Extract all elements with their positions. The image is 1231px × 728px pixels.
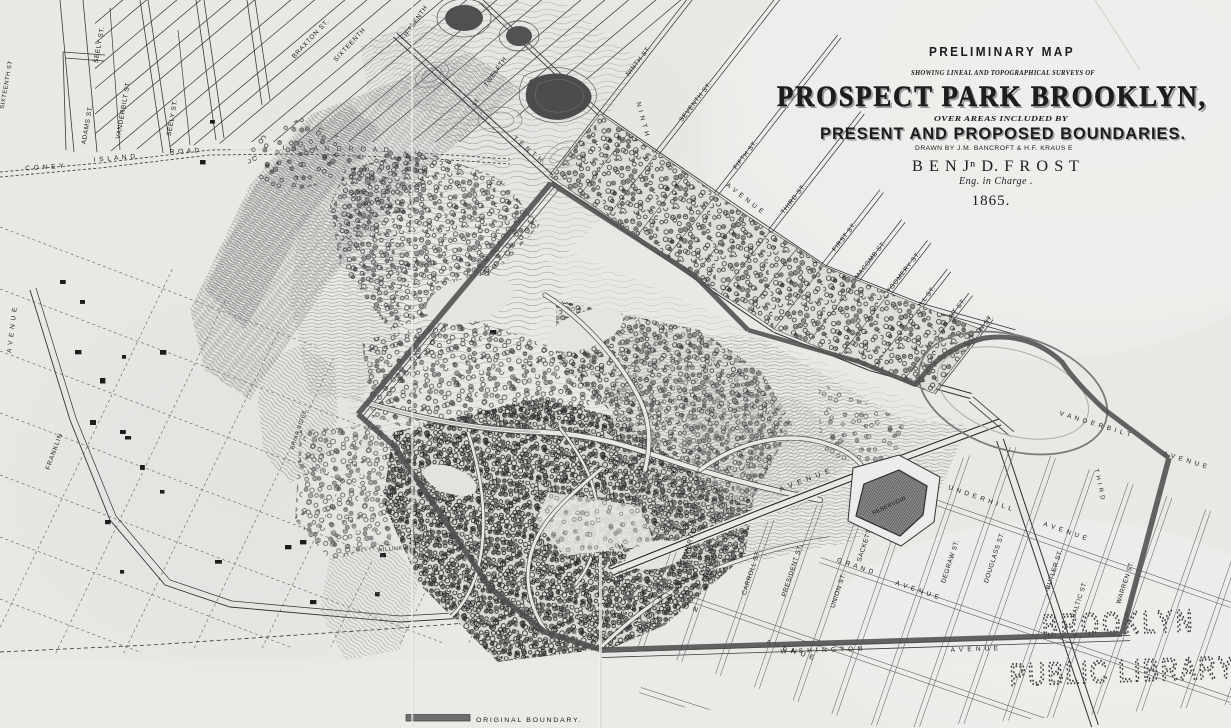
svg-text:BROOKLYN: BROOKLYN [1042, 603, 1197, 643]
svg-text:ORIGINAL BOUNDARY.: ORIGINAL BOUNDARY. [476, 717, 582, 724]
svg-text:SHOWING LINEAL AND TOPOGRAPHIC: SHOWING LINEAL AND TOPOGRAPHICAL SURVEYS… [911, 68, 1095, 77]
svg-text:PRELIMINARY MAP: PRELIMINARY MAP [929, 45, 1075, 59]
svg-text:B E N Jⁿ D. F R O S T: B E N Jⁿ D. F R O S T [912, 158, 1080, 175]
svg-text:PRESENT AND PROPOSED BOUNDARIE: PRESENT AND PROPOSED BOUNDARIES. [820, 124, 1186, 143]
svg-text:OVER AREAS INCLUDED BY: OVER AREAS INCLUDED BY [934, 114, 1069, 123]
svg-text:PROSPECT PARK BROOKLYN,: PROSPECT PARK BROOKLYN, [777, 80, 1207, 113]
svg-text:Eng. in Charge .: Eng. in Charge . [958, 176, 1033, 187]
svg-text:1865.: 1865. [972, 193, 1011, 209]
svg-text:DRAWN BY J.M. BANCROFT & H.F.: DRAWN BY J.M. BANCROFT & H.F. KRAUS E [915, 146, 1073, 152]
